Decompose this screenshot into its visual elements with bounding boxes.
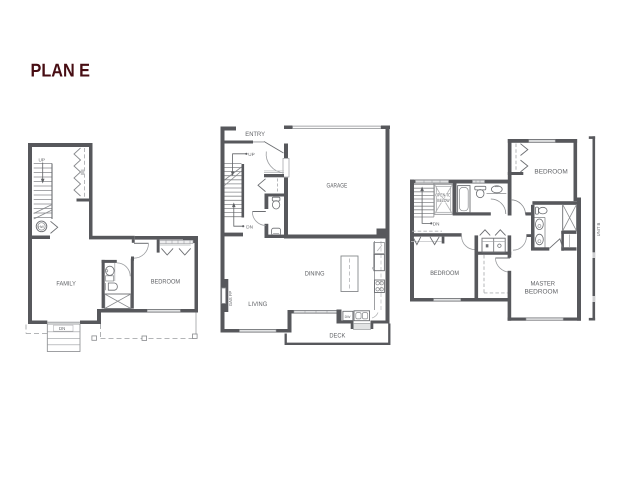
svg-text:FAMILY: FAMILY (56, 281, 76, 288)
svg-text:OPEN TO: OPEN TO (435, 192, 451, 197)
svg-text:DN: DN (246, 224, 253, 229)
svg-text:DW: DW (345, 315, 352, 319)
svg-text:GAS FP: GAS FP (228, 291, 233, 307)
svg-text:PLAN E: PLAN E (31, 60, 91, 81)
svg-text:DINING: DINING (305, 271, 325, 278)
svg-text:UP: UP (248, 152, 254, 157)
svg-text:GARAGE: GARAGE (327, 182, 348, 189)
svg-text:DN: DN (433, 221, 440, 226)
svg-text:DECK: DECK (329, 333, 346, 340)
svg-text:BEDROOM: BEDROOM (430, 270, 459, 277)
svg-text:BEDROOM: BEDROOM (151, 279, 181, 286)
svg-text:ENTRY: ENTRY (245, 131, 265, 138)
svg-text:UNIT B: UNIT B (596, 222, 601, 236)
svg-text:BEDROOM: BEDROOM (534, 168, 567, 175)
svg-text:HW: HW (38, 225, 44, 229)
svg-text:LIVING: LIVING (248, 301, 267, 308)
svg-text:DN: DN (59, 326, 65, 331)
svg-text:BELOW: BELOW (437, 198, 450, 203)
svg-text:MASTER: MASTER (531, 280, 556, 287)
svg-text:BEDROOM: BEDROOM (525, 289, 559, 296)
svg-text:UP: UP (39, 158, 45, 163)
